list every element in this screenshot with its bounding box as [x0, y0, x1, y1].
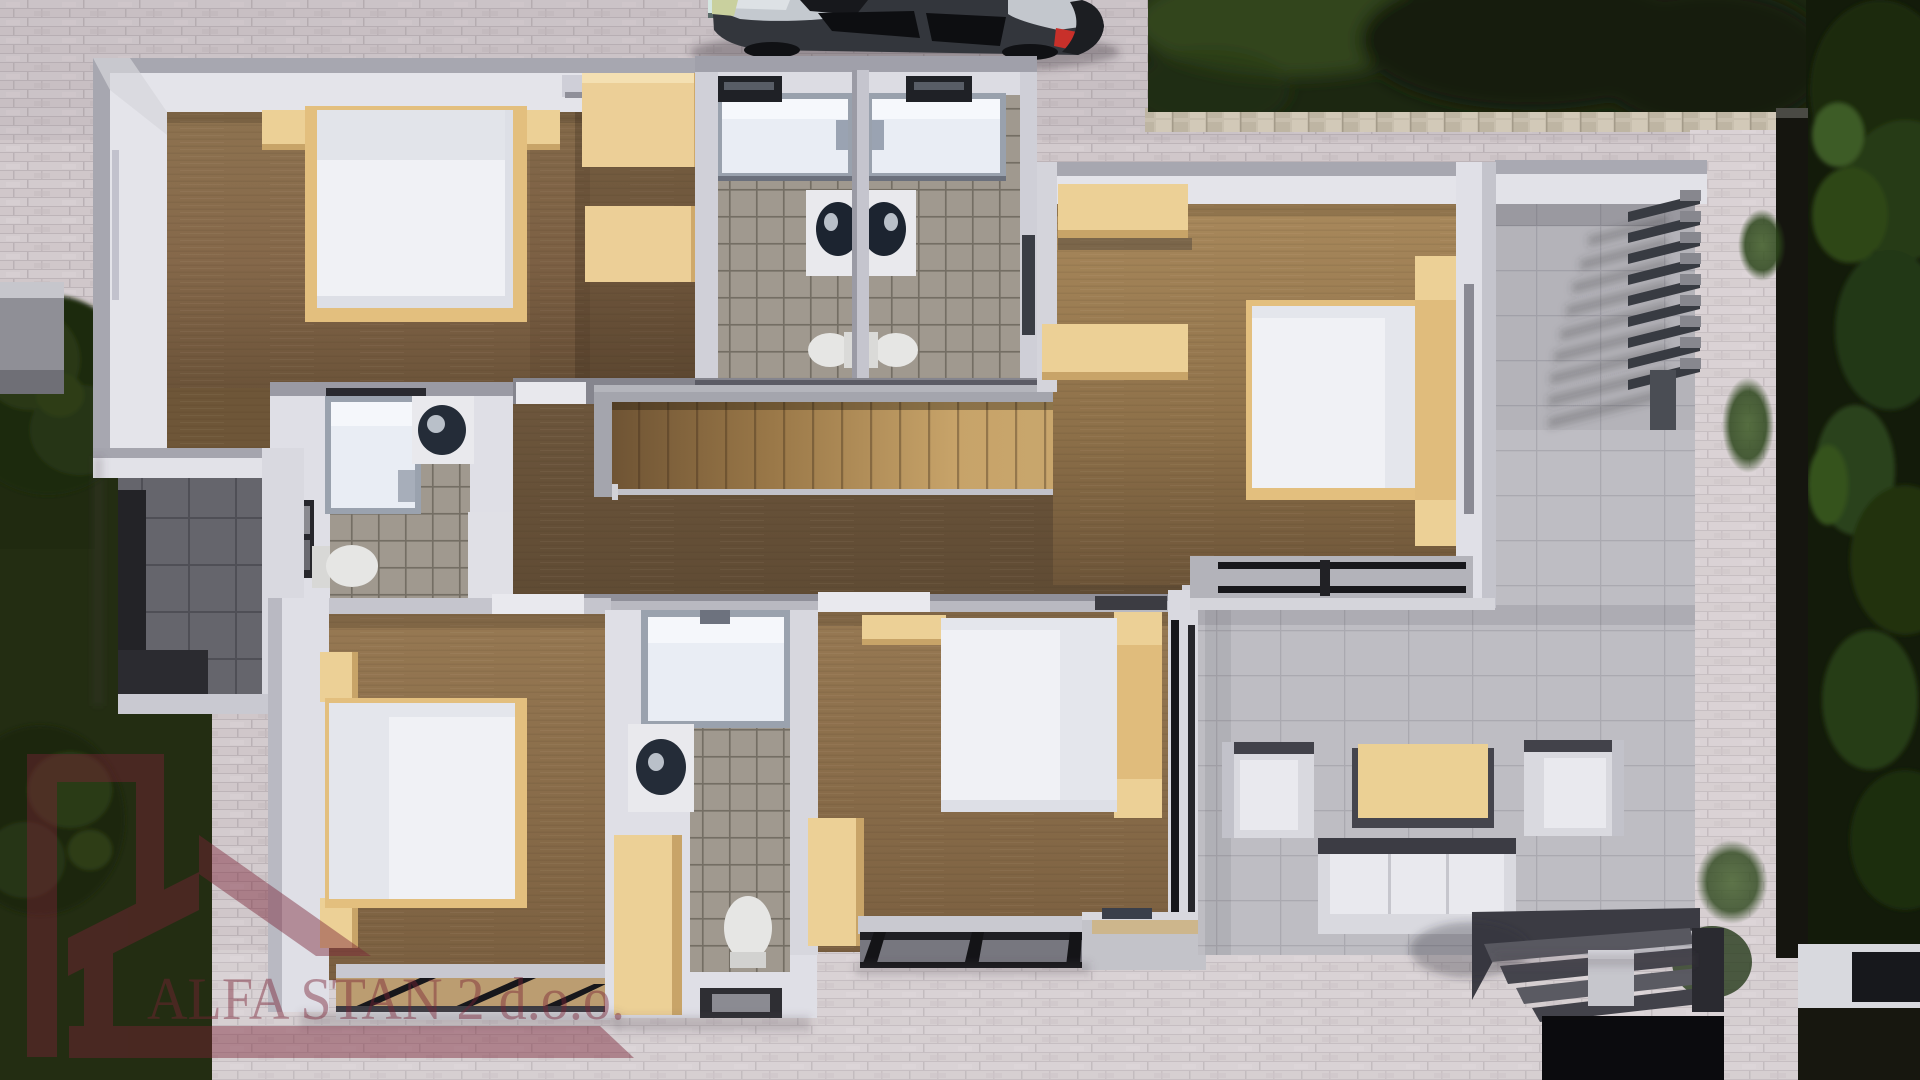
svg-text:ALFA STAN 2 d.o.o.: ALFA STAN 2 d.o.o. — [147, 966, 625, 1032]
